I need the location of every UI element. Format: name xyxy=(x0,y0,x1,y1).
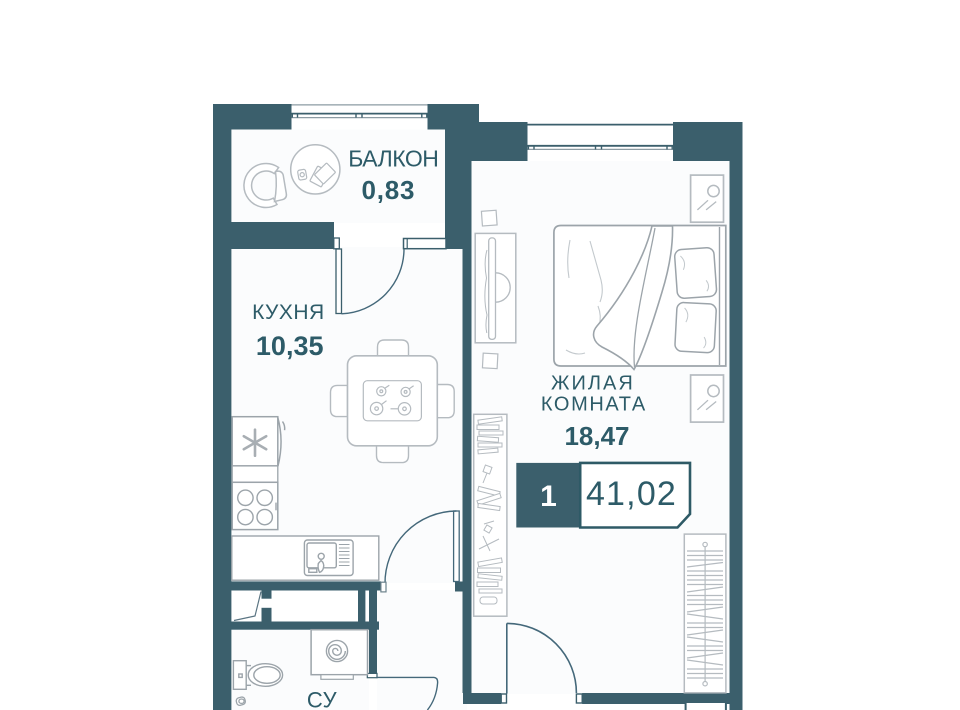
svg-text:0,83: 0,83 xyxy=(361,175,415,205)
svg-text:ЖИЛАЯ: ЖИЛАЯ xyxy=(551,373,635,395)
svg-text:КОМНАТА: КОМНАТА xyxy=(541,394,647,416)
svg-text:10,35: 10,35 xyxy=(256,331,324,361)
svg-text:БАЛКОН: БАЛКОН xyxy=(348,145,438,171)
svg-text:1: 1 xyxy=(540,480,557,513)
svg-text:41,02: 41,02 xyxy=(586,475,677,513)
svg-text:18,47: 18,47 xyxy=(564,421,629,451)
svg-text:КУХНЯ: КУХНЯ xyxy=(252,301,325,324)
svg-text:СУ: СУ xyxy=(307,688,338,710)
